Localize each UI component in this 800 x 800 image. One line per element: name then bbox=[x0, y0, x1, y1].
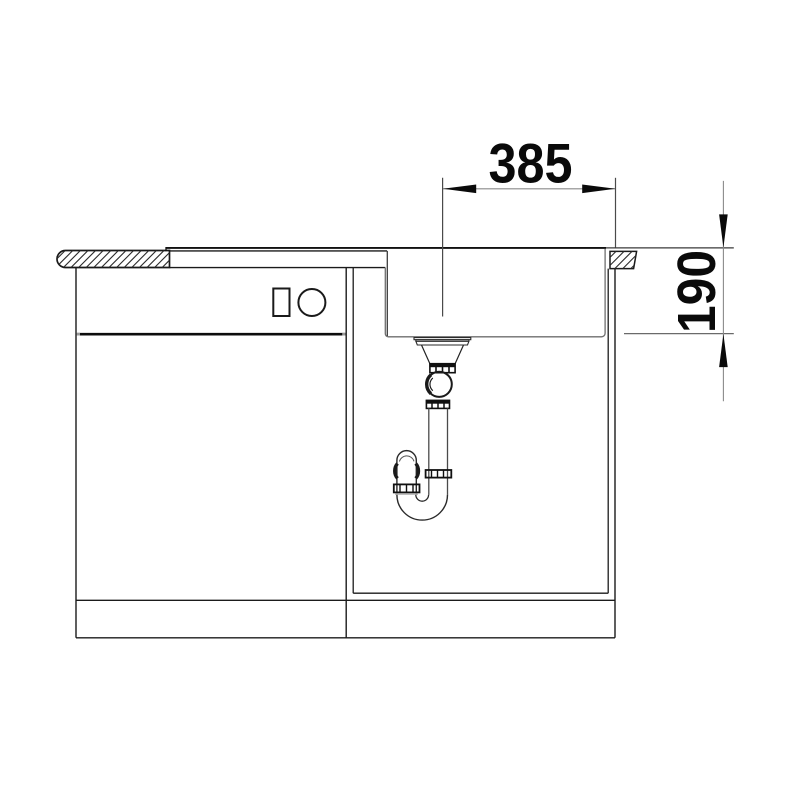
svg-text:190: 190 bbox=[667, 250, 727, 333]
svg-text:385: 385 bbox=[489, 132, 573, 195]
